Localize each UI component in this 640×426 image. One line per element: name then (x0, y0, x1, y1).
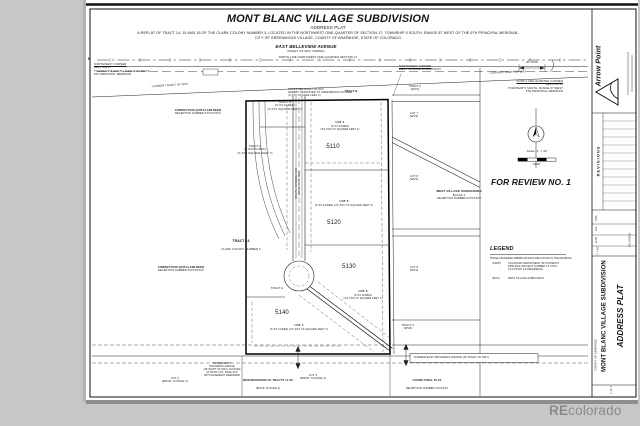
field-value-na: N/A (595, 215, 599, 220)
titleblock-state: COLORADO (629, 233, 632, 247)
tract-a-small-label: TRACT A (271, 287, 283, 290)
legend-entry-2-def: WEST VILLAGE SUBDIVISION (508, 277, 544, 280)
north-line-note: NORTH LINE NORTHWEST ONE-QUARTER SECTION… (279, 56, 357, 59)
wvs-linework (392, 68, 588, 396)
lot-3-name: LOT 3 (358, 289, 367, 293)
address-5110: 5110 (326, 144, 339, 152)
lot-2-name: LOT 2 (339, 199, 348, 203)
parcel-boundary (246, 100, 390, 355)
titleblock-project: MONT BLANC VILLAGE SUBDIVISION (601, 260, 609, 372)
northwest-corner-body: SECTION 17 TOWNSHIP 5 SOUTH, RANGE 67 WE… (94, 66, 149, 76)
north-mark: N (88, 56, 91, 61)
nw-corner-wvs-note: NORTHWEST CORNERWEST VILLAGE SUBDIVISION (399, 65, 441, 72)
wvs-tract-a-label: TRACT A (WVS) (409, 85, 421, 92)
scale-label: Scale: 1" = 40' (527, 150, 548, 154)
sheet-number: 1 of 1 (610, 386, 614, 394)
legend-entry-2-abbr: (WVS) (492, 277, 500, 280)
lot-1-detail: (X.XX ACRES) (XX,XXX.XX SQUARE FEET ±) (321, 125, 360, 131)
wvs-lot-8-label: LOT 8 (WVS) (410, 175, 419, 182)
address-5120: 5120 (327, 220, 341, 228)
titleblock-sheet-title: ADDRESS PLAT (616, 285, 626, 348)
street-name-label: SOUTH JASMINE WAY(50' RIGHT OF WAY) (295, 167, 301, 198)
firm-name: Arrow Point (596, 46, 605, 87)
chung-plat-title: CHUNG FINAL PLAT (413, 378, 442, 382)
correction-deed-top-sub: RECEPTION NUMBER XXXXXXXXX (175, 112, 221, 115)
watermark-rest: colorado (568, 403, 621, 418)
watermark-re: RE (549, 403, 568, 418)
lot-4-label: LOT 4(X.XX ACRES) (XX,XXX.XX SQUARE FEET… (270, 324, 328, 331)
field-value-jhd: JHD (595, 237, 599, 243)
field-value-ua: UA (595, 227, 599, 231)
north-quarter-corner-note: NORTH ONE-QUARTER CORNERSECTION 17 TOWNS… (508, 80, 563, 94)
recolorado-watermark: REcolorado (549, 403, 622, 418)
legend-note: THESE STANDARD ABBREVIATIONS ARE FOUND I… (490, 257, 572, 260)
lot-3-detail: (X.XX ACRES) (XX,XXX.XX SQUARE FEET ±) (344, 294, 383, 300)
lot-2-detail: (X.XX ACRES) (XX,XXX.XX SQUARE FEET ±) (315, 204, 373, 207)
tract-14-sub: CLARK COLONY NUMBER 3 (221, 248, 260, 251)
lot-1-label: LOT 1(X.XX ACRES) (XX,XXX.XX SQUARE FEET… (321, 121, 360, 131)
lot-2-label: LOT 2(X.XX ACRES) (XX,XXX.XX SQUARE FEET… (315, 200, 373, 207)
address-5140: 5140 (275, 310, 289, 318)
wvs-lot-9-label: LOT 9 (WVS) (410, 266, 419, 273)
tract-a-label: TRACT A (X.XXX ACRES) (X,XXX SQUARE FEET… (238, 145, 273, 155)
belleview-row-note: (RIGHT OF WAY VARIES) (287, 50, 324, 54)
south-lot-2-label: LOT 2 (BOOK 72 PAGE 2) (162, 377, 188, 384)
correction-deed-left-sub: RECEPTION NUMBER XXXXXXXXX (158, 269, 204, 272)
resubdivision-title: RESUBDIVISION OF TRACTS 17-20 (243, 378, 293, 382)
review-stamp: FOR REVIEW NO. 1 (491, 177, 571, 188)
tract-14-title: TRACT 14 (232, 239, 249, 243)
northwest-corner-note: NORTHWEST CORNERSECTION 17 TOWNSHIP 5 SO… (94, 63, 149, 77)
former-progress-note-right: FORMER EAST PROGRESS AVENUE (25' RIGHT O… (414, 356, 489, 359)
former-progress-note-left: FORMER EAST PROGRESS AVENUE (25' RIGHT O… (204, 362, 241, 377)
legend-title: LEGEND (490, 246, 514, 253)
street-name: SOUTH JASMINE WAY (294, 167, 298, 198)
tract-14-label: TRACT 14CLARK COLONY NUMBER 3 (221, 228, 260, 251)
chung-plat-label: CHUNG FINAL PLATRECEPTION NUMBER XXXXXXX (406, 367, 448, 390)
address-5130: 5130 (342, 264, 356, 272)
legend-entry-1-abbr: (CDOH) (492, 262, 501, 265)
proposed-row-note: PROPOSED RIGHT OF WAY HEREBY DEDICATED T… (288, 88, 352, 98)
wvs-lot-7-label: LOT 7 (WVS) (410, 112, 419, 119)
lot-3-label: LOT 3(X.XX ACRES) (XX,XXX.XX SQUARE FEET… (344, 290, 383, 300)
lot-1-name: LOT 1 (335, 120, 344, 124)
field-value-scale: 1" = 40' (597, 247, 600, 256)
revisions-label: REVISIONS (596, 146, 601, 177)
correction-deed-note-top: CORRECTION QUITCLAIM DEEDRECEPTION NUMBE… (175, 109, 221, 116)
scale-bar (518, 158, 556, 161)
lot-4-name: LOT 4 (294, 323, 303, 327)
tract-b-flag-label: TRACT B (345, 90, 358, 93)
scale-feet-label: FEET (533, 163, 541, 166)
titleblock-county: COUNTY OF ARAPAHOE (594, 339, 597, 371)
correction-deed-note-left: CORRECTION QUITCLAIM DEEDRECEPTION NUMBE… (158, 266, 204, 273)
row-width-arrows (296, 345, 408, 368)
wvs-reception: RECEPTION NUMBER XXXXXXXX (436, 197, 481, 200)
resubdivision-label: RESUBDIVISION OF TRACTS 17-20(BOOK 72 PA… (243, 367, 293, 390)
wvs-title-block: WEST VILLAGE SUBDIVISIONBLOCK 1RECEPTION… (436, 190, 481, 200)
tract-b-label: TRACT B (X.XX ACRES) (X,XXX SQUARE FEET … (268, 101, 303, 111)
north-quarter-corner-body: SECTION 17 TOWNSHIP 5 SOUTH, RANGE 67 WE… (508, 83, 563, 93)
south-lot-3-label: LOT 3 (BOOK 72 PAGE 2) (300, 374, 326, 381)
row-dim-label: 40' ROW (526, 61, 538, 64)
street-row-note: (50' RIGHT OF WAY) (298, 167, 301, 198)
nw-corner-wvs-body: WEST VILLAGE SUBDIVISION (399, 68, 441, 71)
resubdivision-sub: (BOOK 72 PAGE 2) (243, 387, 293, 390)
legend-entry-1-def: COLORADO DEPARTMENT OF HIGHWAYS ROW MAP,… (508, 262, 559, 271)
replat-description-line1: A REPLAT OF TRACT 14, 15 AND 16 OF THE C… (93, 31, 563, 35)
replat-description-line2: CITY OF GREENWOOD VILLAGE, COUNTY OF ARA… (255, 36, 401, 40)
plat-page: MONT BLANC VILLAGE SUBDIVISION ADDRESS P… (0, 0, 640, 426)
wvs-tract-c-label: TRACT C (WVS) (402, 324, 415, 331)
lot-4-detail: (X.XX ACRES) (XX,XXX.XX SQUARE FEET ±) (270, 328, 328, 331)
chung-plat-sub: RECEPTION NUMBER XXXXXXX (406, 387, 448, 390)
revisions-grid (603, 121, 636, 201)
current-row-label-east: CURRENT RIGHT OF WAY (490, 70, 527, 75)
